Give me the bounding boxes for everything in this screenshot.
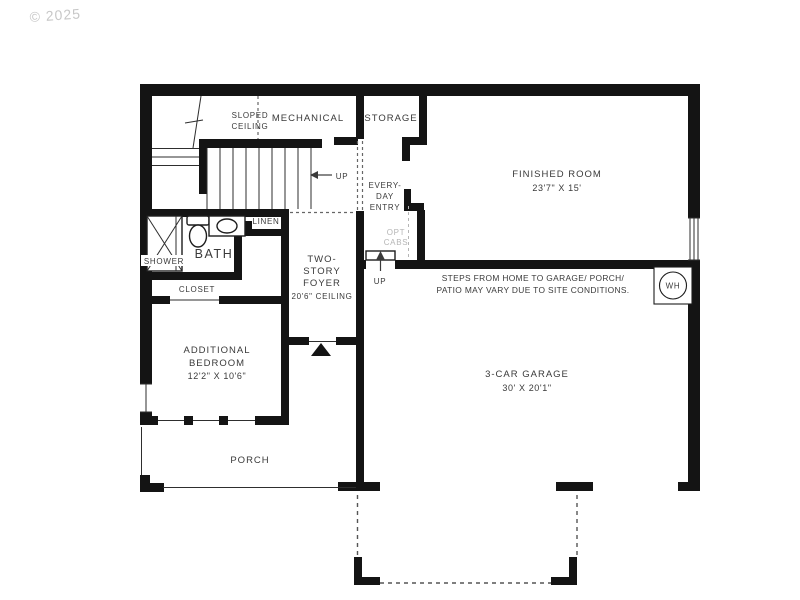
up-arrow-stairs: [310, 171, 332, 179]
driveway-outline: [354, 495, 577, 585]
room-labels: SLOPED CEILING MECHANICAL STORAGE FINISH…: [141, 111, 629, 466]
label-opt-cabs-1: OPT: [387, 228, 406, 237]
label-linen: LINEN: [252, 217, 279, 226]
label-closet: CLOSET: [179, 285, 215, 294]
label-sloped-ceiling-2: CEILING: [232, 122, 269, 131]
label-entry-steps-up: UP: [374, 277, 387, 286]
label-everyday-entry-1: EVERY-: [368, 181, 401, 190]
label-foyer-ceiling: 20'6" CEILING: [291, 292, 352, 301]
label-foyer-3: FOYER: [303, 278, 341, 289]
label-everyday-entry-3: ENTRY: [370, 203, 400, 212]
floor-plan-drawing: © 2025: [0, 0, 800, 600]
label-mechanical: MECHANICAL: [272, 113, 344, 124]
label-shower: SHOWER: [144, 257, 184, 266]
label-bath: BATH: [195, 247, 234, 261]
front-door-marker: [311, 343, 331, 356]
label-bedroom-1: ADDITIONAL: [183, 345, 250, 356]
sink-icon: [209, 216, 245, 236]
label-everyday-entry-2: DAY: [376, 192, 394, 201]
label-foyer-1: TWO-: [307, 254, 336, 265]
label-finished-room-dims: 23'7" X 15': [532, 183, 581, 193]
label-foyer-2: STORY: [303, 266, 340, 277]
label-porch: PORCH: [230, 455, 269, 466]
label-opt-cabs-2: CABS: [384, 238, 409, 247]
label-note-2: PATIO MAY VARY DUE TO SITE CONDITIONS.: [437, 285, 630, 295]
label-note-1: STEPS FROM HOME TO GARAGE/ PORCH/: [442, 273, 625, 283]
label-sloped-ceiling-1: SLOPED: [232, 111, 269, 120]
toilet-icon: [187, 216, 209, 247]
copyright-watermark: © 2025: [29, 5, 81, 25]
floor-plan: © 2025: [0, 0, 800, 600]
label-garage: 3-CAR GARAGE: [485, 369, 569, 380]
label-storage: STORAGE: [364, 113, 417, 124]
water-heater: WH: [654, 267, 692, 304]
label-bedroom-dims: 12'2" X 10'6": [188, 371, 247, 381]
label-bedroom-2: BEDROOM: [189, 358, 245, 369]
label-finished-room: FINISHED ROOM: [512, 169, 602, 180]
label-stairs-up: UP: [336, 172, 349, 181]
water-heater-label: WH: [666, 282, 681, 291]
label-garage-dims: 30' X 20'1": [502, 383, 551, 393]
